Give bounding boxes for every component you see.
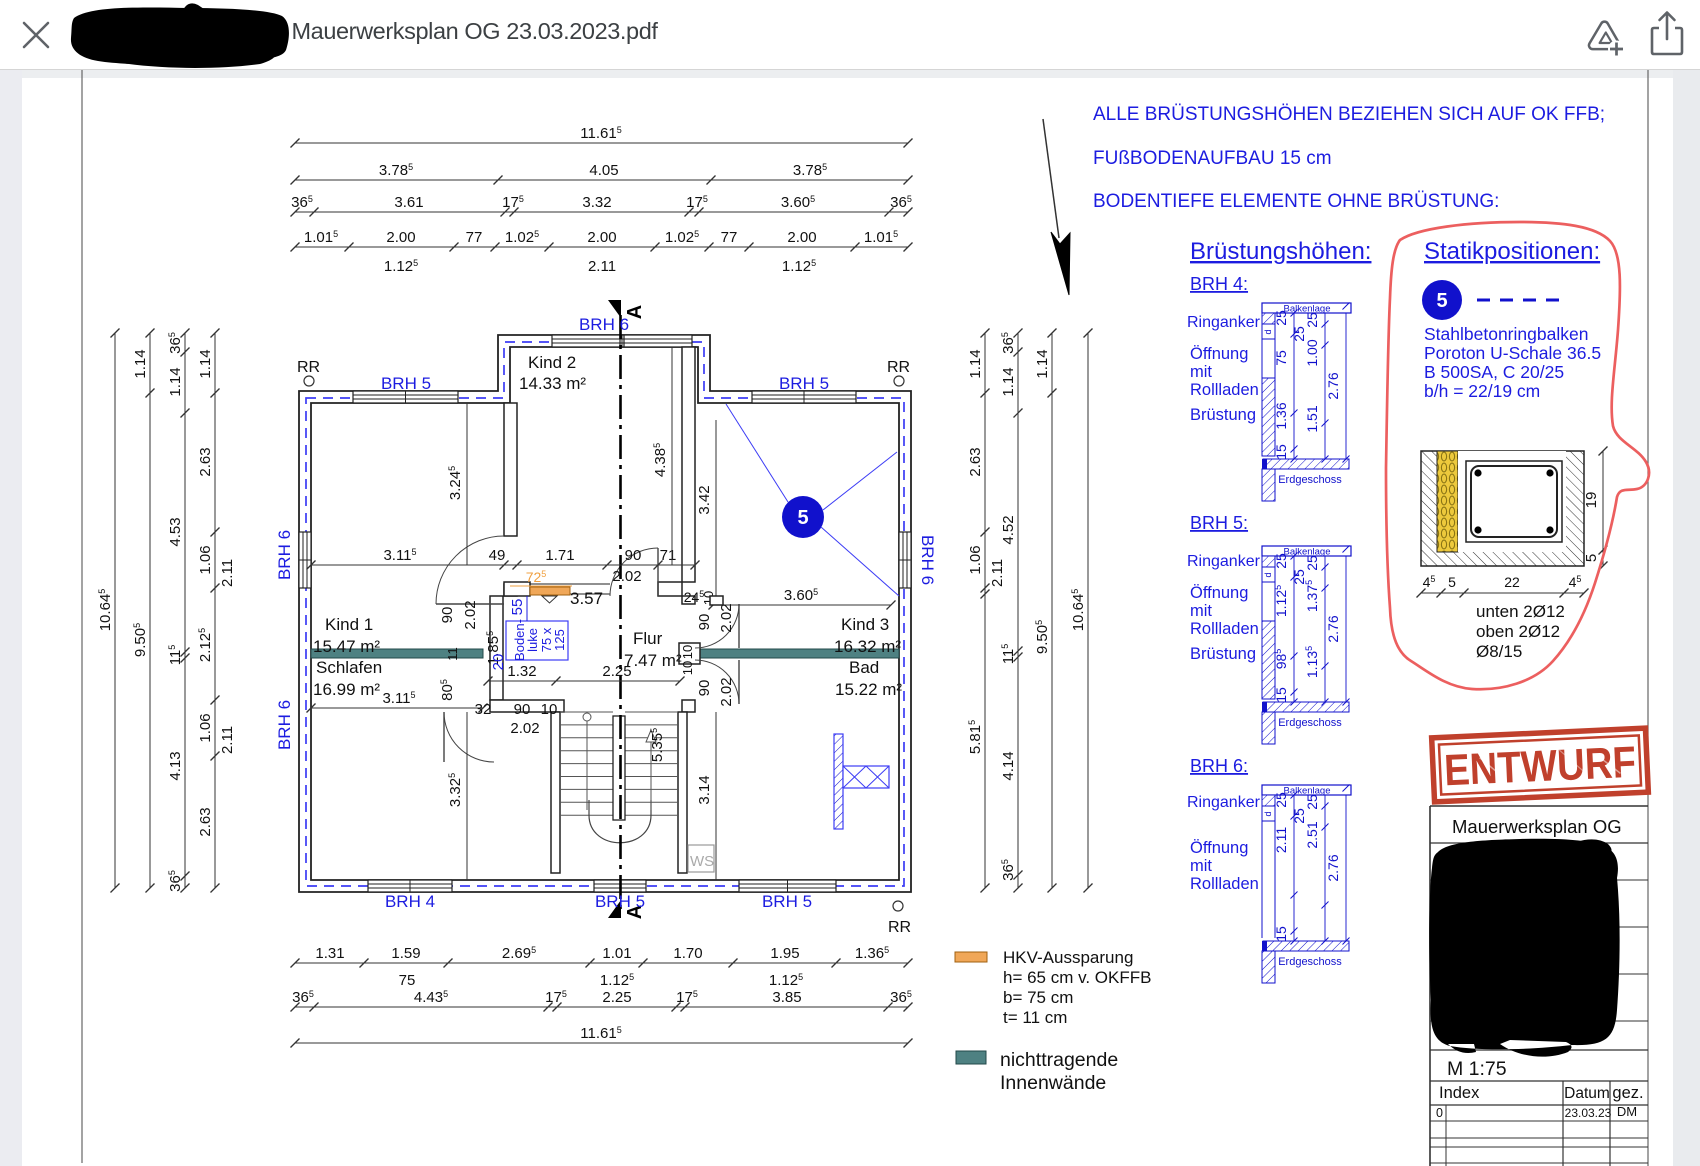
svg-text:Bad: Bad (849, 658, 879, 677)
svg-text:3.32: 3.32 (582, 194, 611, 211)
svg-text:1.125: 1.125 (600, 972, 634, 989)
svg-text:b= 75 cm: b= 75 cm (1003, 988, 1073, 1007)
svg-text:3.605: 3.605 (781, 194, 815, 211)
svg-text:1.06: 1.06 (197, 713, 214, 742)
svg-text:Index: Index (1439, 1084, 1480, 1102)
svg-text:BRH 5: BRH 5 (595, 892, 645, 911)
svg-text:2.02: 2.02 (510, 720, 539, 737)
svg-text:3.57: 3.57 (570, 589, 603, 608)
svg-text:5.815: 5.815 (967, 720, 984, 754)
svg-text:5: 5 (1448, 574, 1456, 590)
svg-text:1.14: 1.14 (1000, 367, 1017, 396)
svg-text:5.355: 5.355 (649, 728, 666, 762)
svg-text:2.00: 2.00 (587, 229, 616, 246)
svg-text:7.47 m²: 7.47 m² (624, 651, 682, 670)
svg-text:1.015: 1.015 (864, 229, 898, 246)
svg-text:1.365: 1.365 (855, 945, 889, 962)
svg-text:BRH 5: BRH 5 (779, 374, 829, 393)
svg-text:75: 75 (1273, 350, 1289, 366)
svg-text:oben 2Ø12: oben 2Ø12 (1476, 622, 1560, 641)
svg-text:2.63: 2.63 (197, 447, 214, 476)
svg-text:1.14: 1.14 (1034, 349, 1051, 378)
svg-text:10: 10 (680, 661, 695, 675)
svg-text:15.22 m²: 15.22 m² (835, 680, 902, 699)
svg-text:Rollladen: Rollladen (1190, 381, 1259, 399)
svg-text:1.14: 1.14 (132, 349, 149, 378)
svg-text:16.99 m²: 16.99 m² (313, 680, 380, 699)
svg-text:4.14: 4.14 (1000, 751, 1017, 780)
svg-text:4.13: 4.13 (167, 751, 184, 780)
svg-text:2.11: 2.11 (219, 726, 236, 754)
svg-text:BODENTIEFE ELEMENTE OHNE BRÜST: BODENTIEFE ELEMENTE OHNE BRÜSTUNG: (1093, 191, 1499, 212)
svg-text:RR: RR (887, 359, 910, 376)
svg-text:Brüstung: Brüstung (1190, 645, 1256, 663)
svg-text:2.76: 2.76 (1325, 615, 1341, 642)
svg-text:HKV-Aussparung: HKV-Aussparung (1003, 948, 1133, 967)
svg-text:90: 90 (514, 701, 531, 718)
svg-text:b/h = 22/19 cm: b/h = 22/19 cm (1424, 381, 1540, 401)
svg-text:10: 10 (680, 645, 695, 659)
svg-text:1.00: 1.00 (1304, 339, 1320, 366)
svg-text:71: 71 (660, 547, 677, 564)
svg-text:77: 77 (721, 229, 738, 246)
svg-text:77: 77 (466, 229, 483, 246)
svg-text:B 500SA, C 20/25: B 500SA, C 20/25 (1424, 362, 1564, 382)
svg-text:25: 25 (1304, 312, 1320, 328)
svg-text:ALLE BRÜSTUNGSHÖHEN BEZIEHEN S: ALLE BRÜSTUNGSHÖHEN BEZIEHEN SICH AUF OK… (1093, 104, 1605, 125)
svg-text:BRH 6: BRH 6 (579, 315, 629, 334)
svg-text:1.14: 1.14 (197, 349, 214, 378)
svg-text:9.505: 9.505 (132, 623, 149, 657)
svg-text:25: 25 (1304, 555, 1320, 571)
svg-text:3.14: 3.14 (696, 775, 713, 804)
svg-text:2.51: 2.51 (1304, 821, 1320, 848)
svg-text:90: 90 (439, 607, 456, 624)
svg-text:11.615: 11.615 (580, 125, 621, 142)
svg-text:DM: DM (1617, 1104, 1637, 1119)
svg-text:Kind 3: Kind 3 (841, 615, 889, 634)
svg-text:Innenwände: Innenwände (1000, 1072, 1106, 1094)
svg-text:0: 0 (1436, 1106, 1443, 1120)
svg-text:16.32 m²: 16.32 m² (834, 637, 901, 656)
svg-text:1.125: 1.125 (782, 258, 816, 275)
svg-text:2.125: 2.125 (197, 628, 214, 662)
svg-text:unten 2Ø12: unten 2Ø12 (1476, 602, 1565, 621)
svg-text:15.47 m²: 15.47 m² (313, 637, 380, 656)
svg-text:32: 32 (475, 701, 492, 718)
svg-text:3.325: 3.325 (447, 773, 464, 807)
svg-text:10.645: 10.645 (97, 589, 114, 632)
svg-text:3.61: 3.61 (394, 194, 423, 211)
svg-text:25: 25 (1273, 553, 1289, 569)
svg-text:RR: RR (888, 919, 911, 936)
svg-text:WS: WS (690, 853, 714, 870)
svg-text:4.05: 4.05 (589, 162, 618, 179)
svg-text:4.435: 4.435 (414, 989, 448, 1006)
svg-text:9.505: 9.505 (1034, 620, 1051, 654)
svg-text:BRH 6:: BRH 6: (1190, 756, 1248, 776)
svg-text:RR: RR (297, 359, 320, 376)
svg-text:Öffnung: Öffnung (1190, 839, 1248, 857)
svg-text:2.25: 2.25 (602, 663, 631, 680)
svg-text:3.85: 3.85 (772, 989, 801, 1006)
svg-text:Ringanker: Ringanker (1187, 553, 1261, 570)
svg-text:2.11: 2.11 (989, 559, 1006, 587)
svg-text:5: 5 (797, 507, 808, 529)
svg-text:10: 10 (541, 701, 558, 718)
svg-text:1.125: 1.125 (384, 258, 418, 275)
svg-text:55: 55 (509, 599, 526, 616)
svg-text:Statikpositionen:: Statikpositionen: (1424, 238, 1600, 265)
svg-text:FUßBODENAUFBAU 15 cm: FUßBODENAUFBAU 15 cm (1093, 148, 1332, 169)
svg-text:Schlafen: Schlafen (316, 658, 382, 677)
svg-text:d: d (1263, 329, 1273, 334)
svg-text:49: 49 (489, 547, 506, 564)
svg-text:2.11: 2.11 (219, 559, 236, 587)
svg-text:d: d (1263, 572, 1273, 577)
svg-text:Rollladen: Rollladen (1190, 875, 1259, 893)
svg-text:3.785: 3.785 (379, 162, 413, 179)
svg-text:Kind 2: Kind 2 (528, 353, 576, 372)
svg-text:1.70: 1.70 (673, 945, 702, 962)
svg-text:Flur: Flur (633, 629, 663, 648)
svg-text:22: 22 (1504, 574, 1520, 590)
svg-text:Ø8/15: Ø8/15 (1476, 642, 1522, 661)
svg-text:BRH 4: BRH 4 (385, 892, 435, 911)
svg-text:gez.: gez. (1612, 1084, 1643, 1102)
svg-text:Öffnung: Öffnung (1190, 345, 1248, 363)
svg-text:Erdgeschoss: Erdgeschoss (1278, 717, 1342, 729)
svg-text:2.00: 2.00 (386, 229, 415, 246)
svg-text:2.02: 2.02 (718, 677, 735, 706)
svg-text:Ringanker: Ringanker (1187, 794, 1261, 811)
svg-text:BRH 5: BRH 5 (762, 892, 812, 911)
svg-text:Brüstungshöhen:: Brüstungshöhen: (1190, 238, 1371, 265)
svg-text:1.71: 1.71 (545, 547, 574, 564)
svg-text:1.06: 1.06 (967, 545, 984, 574)
svg-text:luke: luke (525, 628, 540, 652)
svg-text:2.63: 2.63 (197, 807, 214, 836)
svg-text:1.14: 1.14 (967, 349, 984, 378)
svg-text:3.605: 3.605 (784, 587, 818, 604)
svg-text:Kind 1: Kind 1 (325, 615, 373, 634)
svg-text:BRH 5: BRH 5 (381, 374, 431, 393)
svg-text:1.31: 1.31 (315, 945, 344, 962)
svg-text:t= 11 cm: t= 11 cm (1003, 1008, 1067, 1027)
svg-text:BRH 6: BRH 6 (275, 530, 294, 580)
svg-text:3.42: 3.42 (696, 485, 713, 514)
svg-text:ENTWURF: ENTWURF (1443, 738, 1637, 796)
svg-text:Stahlbetonringbalken: Stahlbetonringbalken (1424, 324, 1588, 344)
svg-text:1.32: 1.32 (507, 663, 536, 680)
svg-text:mit: mit (1190, 602, 1212, 620)
svg-text:5: 5 (1583, 554, 1600, 562)
svg-text:h= 65 cm v. OKFFB: h= 65 cm v. OKFFB (1003, 968, 1151, 987)
svg-text:19: 19 (1583, 492, 1600, 509)
svg-text:BRH 6: BRH 6 (275, 700, 294, 750)
svg-text:1.36: 1.36 (1273, 402, 1289, 429)
svg-text:2.76: 2.76 (1325, 372, 1341, 399)
svg-text:2.11: 2.11 (588, 258, 616, 275)
svg-text:Erdgeschoss: Erdgeschoss (1278, 474, 1342, 486)
svg-text:Rollladen: Rollladen (1190, 620, 1259, 638)
svg-text:25: 25 (1273, 792, 1289, 808)
svg-text:BRH 4:: BRH 4: (1190, 274, 1248, 294)
svg-text:25: 25 (1304, 794, 1320, 810)
svg-text:2.11: 2.11 (1273, 827, 1289, 853)
svg-text:Datum: Datum (1564, 1085, 1610, 1102)
svg-text:25: 25 (1273, 310, 1289, 326)
svg-text:1.015: 1.015 (304, 229, 338, 246)
svg-text:14.33 m²: 14.33 m² (519, 374, 586, 393)
svg-text:1.01: 1.01 (602, 945, 631, 962)
svg-text:1.14: 1.14 (167, 367, 184, 396)
svg-text:M 1:75: M 1:75 (1447, 1058, 1507, 1080)
svg-text:Brüstung: Brüstung (1190, 406, 1256, 424)
svg-text:1.06: 1.06 (197, 545, 214, 574)
svg-text:2.76: 2.76 (1325, 854, 1341, 881)
svg-text:3.245: 3.245 (447, 466, 464, 500)
svg-text:4.52: 4.52 (1000, 515, 1017, 544)
svg-text:23.03.23: 23.03.23 (1565, 1106, 1612, 1120)
svg-text:1.59: 1.59 (391, 945, 420, 962)
svg-text:mit: mit (1190, 857, 1212, 875)
svg-text:Mauerwerksplan OG: Mauerwerksplan OG (1452, 816, 1622, 837)
svg-text:1.025: 1.025 (665, 229, 699, 246)
svg-text:2.25: 2.25 (602, 989, 631, 1006)
svg-text:15: 15 (1273, 926, 1289, 942)
svg-text:mit: mit (1190, 363, 1212, 381)
svg-text:5: 5 (1436, 290, 1447, 312)
svg-text:11.615: 11.615 (580, 1025, 621, 1042)
svg-text:1.125: 1.125 (769, 972, 803, 989)
svg-text:90: 90 (625, 547, 642, 564)
svg-text:2.63: 2.63 (967, 447, 984, 476)
svg-text:90: 90 (696, 614, 713, 631)
svg-text:4.385: 4.385 (652, 443, 669, 477)
svg-text:2.02: 2.02 (462, 600, 479, 629)
svg-text:75: 75 (399, 972, 416, 989)
svg-text:Erdgeschoss: Erdgeschoss (1278, 956, 1342, 968)
svg-text:11: 11 (445, 647, 460, 661)
svg-text:1.025: 1.025 (505, 229, 539, 246)
svg-text:3.785: 3.785 (793, 162, 827, 179)
svg-text:2.695: 2.695 (502, 945, 536, 962)
svg-text:Öffnung: Öffnung (1190, 584, 1248, 602)
svg-text:BRH 5:: BRH 5: (1190, 513, 1248, 533)
svg-text:15: 15 (1273, 687, 1289, 703)
svg-text:BRH 6: BRH 6 (918, 535, 937, 585)
svg-text:Ringanker: Ringanker (1187, 314, 1261, 331)
svg-text:2.00: 2.00 (787, 229, 816, 246)
svg-text:Poroton U-Schale 36.5: Poroton U-Schale 36.5 (1424, 343, 1601, 363)
svg-text:4.53: 4.53 (167, 517, 184, 546)
svg-text:125: 125 (552, 629, 567, 651)
svg-text:nichttragende: nichttragende (1000, 1049, 1118, 1071)
svg-text:15: 15 (1273, 444, 1289, 460)
svg-text:1.51: 1.51 (1304, 405, 1320, 432)
svg-text:20: 20 (490, 654, 507, 671)
svg-text:10.645: 10.645 (1070, 589, 1087, 632)
svg-text:2.02: 2.02 (718, 603, 735, 632)
svg-text:90: 90 (696, 680, 713, 697)
svg-text:1.95: 1.95 (770, 945, 799, 962)
svg-text:2.02: 2.02 (612, 568, 641, 585)
svg-text:d: d (1263, 811, 1273, 816)
